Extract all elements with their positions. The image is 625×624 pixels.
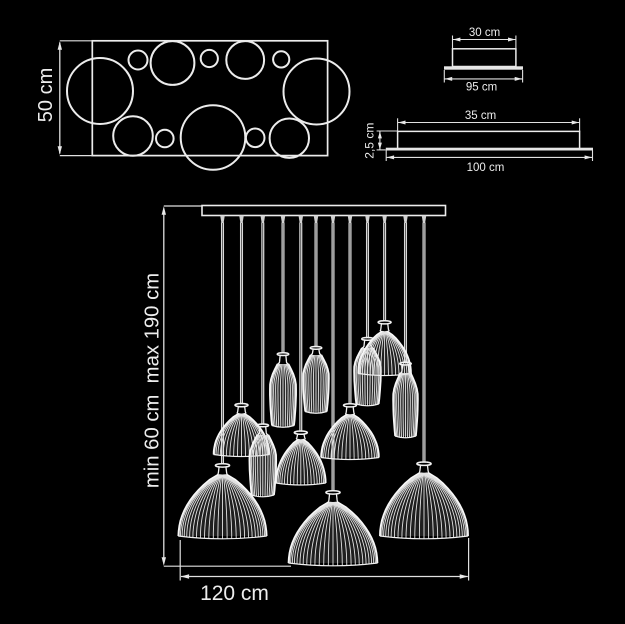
svg-text:35 cm: 35 cm (465, 110, 496, 122)
svg-text:120 cm: 120 cm (200, 582, 269, 605)
svg-text:2,5 cm: 2,5 cm (363, 123, 377, 159)
svg-text:min 60 cm max 190 cm: min 60 cm max 190 cm (142, 273, 164, 488)
svg-text:30 cm: 30 cm (469, 27, 500, 39)
svg-text:100 cm: 100 cm (467, 162, 505, 174)
svg-text:50 cm: 50 cm (35, 68, 57, 122)
svg-text:95 cm: 95 cm (466, 82, 497, 94)
